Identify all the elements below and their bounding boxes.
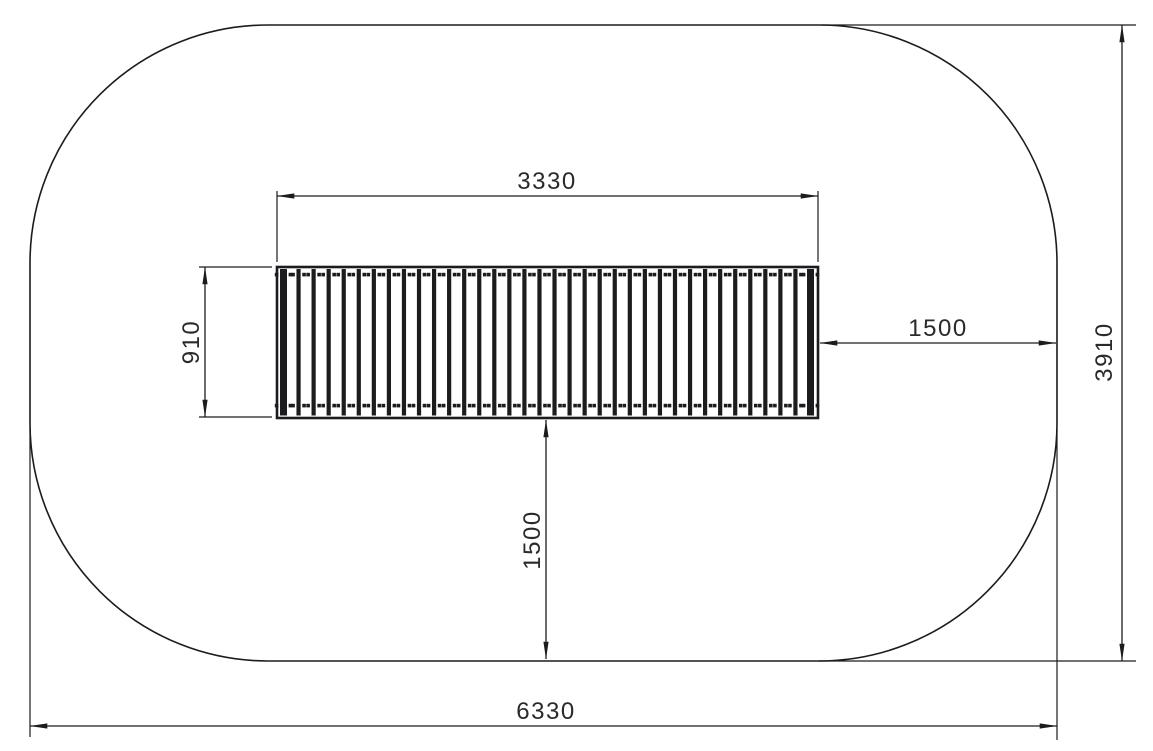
slat-fastener-dot: [683, 273, 687, 277]
bridge-slat: [477, 269, 481, 416]
slat-fastener-dot: [528, 404, 532, 408]
dimension-label-area-height: 3910: [1091, 322, 1118, 381]
slat-fastener-dot: [769, 404, 773, 408]
slat-fastener-dot: [679, 404, 683, 408]
slat-fastener-dot: [709, 273, 713, 277]
slat-fastener-dot: [618, 404, 622, 408]
slat-fastener-dot: [754, 273, 758, 277]
slat-fastener-dot: [634, 404, 638, 408]
slat-fastener-dot: [457, 404, 461, 408]
bridge-slat: [312, 269, 316, 416]
slat-fastener-dot: [739, 404, 743, 408]
bridge-slat: [643, 269, 647, 416]
bridge-slat: [733, 269, 737, 416]
slat-fastener-dot: [306, 273, 310, 277]
slat-fastener-dot: [773, 404, 777, 408]
slat-fastener-dot: [468, 273, 472, 277]
bridge-slat: [387, 269, 391, 416]
slat-fastener-dot: [592, 404, 596, 408]
slat-fastener-dot: [427, 404, 431, 408]
bridge-slats: [275, 269, 819, 416]
bridge-slat: [628, 269, 632, 416]
slat-fastener-dot: [453, 273, 457, 277]
slat-fastener-dot: [347, 273, 351, 277]
bridge-slat: [567, 269, 571, 416]
slat-fastener-dot: [408, 273, 412, 277]
slat-fastener-dot: [724, 273, 728, 277]
bridge-slat: [372, 269, 376, 416]
technical-drawing: 3330 910 1500 1500 3910: [0, 0, 1153, 751]
slat-fastener-dot: [397, 404, 401, 408]
slat-fastener-dot: [351, 273, 355, 277]
bridge-slat: [296, 269, 300, 416]
slat-fastener-dot: [502, 273, 506, 277]
slat-fastener-dot: [709, 404, 713, 408]
slat-fastener-dot: [397, 273, 401, 277]
slat-fastener-dot: [649, 273, 653, 277]
slat-fastener-dot: [592, 273, 596, 277]
bridge-slat: [357, 269, 361, 416]
bridge-slat: [718, 269, 722, 416]
slat-fastener-dot: [351, 404, 355, 408]
slat-fastener-dot: [743, 273, 747, 277]
slat-fastener-dot: [438, 404, 442, 408]
slat-fastener-dot: [378, 273, 382, 277]
bridge-slat: [537, 269, 541, 416]
slat-fastener-dot: [769, 273, 773, 277]
slat-fastener-dot: [423, 273, 427, 277]
slat-fastener-dot: [336, 273, 340, 277]
dimension-label-bridge-length: 3330: [517, 168, 576, 195]
slat-fastener-dot: [382, 404, 386, 408]
slat-fastener-dot: [698, 273, 702, 277]
slat-fastener-dot: [306, 404, 310, 408]
bridge-slat: [552, 269, 556, 416]
bridge-slat: [432, 269, 436, 416]
slat-fastener-dot: [547, 273, 551, 277]
slat-fastener-dot: [788, 273, 792, 277]
slat-fastener-dot: [332, 273, 336, 277]
slat-fastener-dot: [543, 404, 547, 408]
slat-fastener-dot: [468, 404, 472, 408]
slat-fastener-dot: [607, 404, 611, 408]
slat-fastener-dot: [517, 273, 521, 277]
slat-fastener-dot: [724, 404, 728, 408]
slat-fastener-dot: [788, 404, 792, 408]
dimension-label-clearance-right: 1500: [908, 315, 967, 342]
slat-fastener-dot: [472, 404, 476, 408]
dimension-clearance-below: 1500: [519, 420, 546, 659]
slat-fastener-dot: [347, 404, 351, 408]
bridge-slat: [673, 269, 677, 416]
slat-fastener-dot: [562, 273, 566, 277]
bridge-slat: [703, 269, 707, 416]
slat-fastener-dot: [558, 404, 562, 408]
slat-fastener-dot: [618, 273, 622, 277]
slat-fastener-dot: [532, 404, 536, 408]
bridge-slat: [598, 269, 602, 416]
slat-fastener-dot: [291, 404, 295, 408]
slat-fastener-dot: [728, 273, 732, 277]
slat-fastener-dot: [498, 273, 502, 277]
bridge-slat: [447, 269, 451, 416]
slat-fastener-dot: [408, 404, 412, 408]
bridge-slat: [462, 269, 466, 416]
slat-fastener-dot: [577, 273, 581, 277]
slat-fastener-dot: [457, 273, 461, 277]
bridge-slat: [342, 269, 346, 416]
slat-fastener-dot: [653, 404, 657, 408]
slat-fastener-dot: [603, 273, 607, 277]
slat-fastener-dot: [664, 273, 668, 277]
slat-fastener-dot: [442, 404, 446, 408]
slat-fastener-dot: [378, 404, 382, 408]
slat-fastener-dot: [483, 404, 487, 408]
slat-fastener-dot: [739, 273, 743, 277]
slat-fastener-dot: [573, 273, 577, 277]
dimension-label-area-width: 6330: [516, 698, 575, 725]
slat-fastener-dot: [603, 404, 607, 408]
slat-fastener-dot: [623, 273, 627, 277]
slat-fastener-dot: [694, 273, 698, 277]
bridge-slat: [658, 269, 662, 416]
slat-fastener-dot: [802, 273, 806, 277]
slat-fastener-dot: [607, 273, 611, 277]
slat-fastener-dot: [317, 273, 321, 277]
slat-fastener-dot: [694, 404, 698, 408]
slat-fastener-dot: [698, 404, 702, 408]
slat-fastener-dot: [302, 404, 306, 408]
slat-fastener-dot: [438, 273, 442, 277]
slat-fastener-dot: [562, 404, 566, 408]
slat-fastener-dot: [367, 273, 371, 277]
slat-fastener-dot: [784, 404, 788, 408]
slat-fastener-dot: [528, 273, 532, 277]
slat-fastener-dot: [427, 273, 431, 277]
dimension-area-width: 6330: [30, 428, 1057, 740]
slat-fastener-dot: [487, 273, 491, 277]
slat-fastener-dot: [412, 404, 416, 408]
slat-fastener-dot: [668, 273, 672, 277]
slat-fastener-dot: [754, 404, 758, 408]
slat-fastener-dot: [679, 273, 683, 277]
slat-fastener-dot: [321, 273, 325, 277]
slat-fastener-dot: [543, 273, 547, 277]
slat-fastener-dot: [638, 273, 642, 277]
dimension-bridge-length: 3330: [277, 168, 818, 262]
dimension-label-clearance-below: 1500: [519, 510, 546, 569]
slat-fastener-dot: [423, 404, 427, 408]
slat-fastener-dot: [588, 273, 592, 277]
bridge-slat: [807, 269, 814, 416]
slat-fastener-dot: [442, 273, 446, 277]
slat-fastener-dot: [728, 404, 732, 408]
slat-fastener-dot: [393, 273, 397, 277]
slat-fastener-dot: [668, 404, 672, 408]
dimension-bridge-width: 910: [178, 267, 272, 417]
bridge-slat: [778, 269, 782, 416]
slat-fastener-dot: [362, 404, 366, 408]
slat-fastener-dot: [517, 404, 521, 408]
slat-fastener-dot: [743, 404, 747, 408]
slat-fastener-dot: [483, 273, 487, 277]
slat-fastener-dot: [513, 273, 517, 277]
slat-fastener-dot: [321, 404, 325, 408]
slat-fastener-dot: [649, 404, 653, 408]
slat-fastener-dot: [302, 273, 306, 277]
slat-fastener-dot: [634, 273, 638, 277]
slat-fastener-dot: [664, 404, 668, 408]
bridge-slat: [793, 269, 797, 416]
bridge-slat: [748, 269, 752, 416]
slat-fastener-dot: [472, 273, 476, 277]
slat-fastener-dot: [453, 404, 457, 408]
bridge-slat: [492, 269, 496, 416]
slat-fastener-dot: [802, 404, 806, 408]
bridge-deck: [275, 267, 819, 418]
slat-fastener-dot: [412, 273, 416, 277]
slat-fastener-dot: [713, 273, 717, 277]
slat-fastener-dot: [332, 404, 336, 408]
slat-fastener-dot: [784, 273, 788, 277]
slat-fastener-dot: [623, 404, 627, 408]
bridge-slat: [402, 269, 406, 416]
slat-fastener-dot: [773, 273, 777, 277]
slat-fastener-dot: [758, 404, 762, 408]
bridge-slat: [280, 269, 287, 416]
slat-fastener-dot: [577, 404, 581, 408]
slat-fastener-dot: [513, 404, 517, 408]
bridge-slat: [613, 269, 617, 416]
slat-fastener-dot: [498, 404, 502, 408]
slat-fastener-dot: [367, 404, 371, 408]
slat-fastener-dot: [573, 404, 577, 408]
slat-fastener-dot: [487, 404, 491, 408]
bridge-slat: [327, 269, 331, 416]
slat-fastener-dot: [336, 404, 340, 408]
slat-fastener-dot: [558, 273, 562, 277]
bridge-slat: [688, 269, 692, 416]
bridge-slat: [522, 269, 526, 416]
dimension-label-bridge-width: 910: [178, 320, 205, 365]
slat-fastener-dot: [317, 404, 321, 408]
slat-fastener-dot: [638, 404, 642, 408]
slat-fastener-dot: [291, 273, 295, 277]
dimension-clearance-right: 1500: [820, 315, 1056, 343]
slat-fastener-dot: [393, 404, 397, 408]
bridge-slat: [417, 269, 421, 416]
technical-drawing-page: 3330 910 1500 1500 3910: [0, 0, 1153, 751]
slat-fastener-dot: [588, 404, 592, 408]
slat-fastener-dot: [362, 273, 366, 277]
slat-fastener-dot: [547, 404, 551, 408]
slat-fastener-dot: [502, 404, 506, 408]
slat-fastener-dot: [532, 273, 536, 277]
bridge-slat: [763, 269, 767, 416]
slat-fastener-dot: [382, 273, 386, 277]
slat-fastener-dot: [713, 404, 717, 408]
slat-fastener-dot: [683, 404, 687, 408]
slat-fastener-dot: [653, 273, 657, 277]
bridge-slat: [507, 269, 511, 416]
slat-fastener-dot: [758, 273, 762, 277]
bridge-slat: [583, 269, 587, 416]
